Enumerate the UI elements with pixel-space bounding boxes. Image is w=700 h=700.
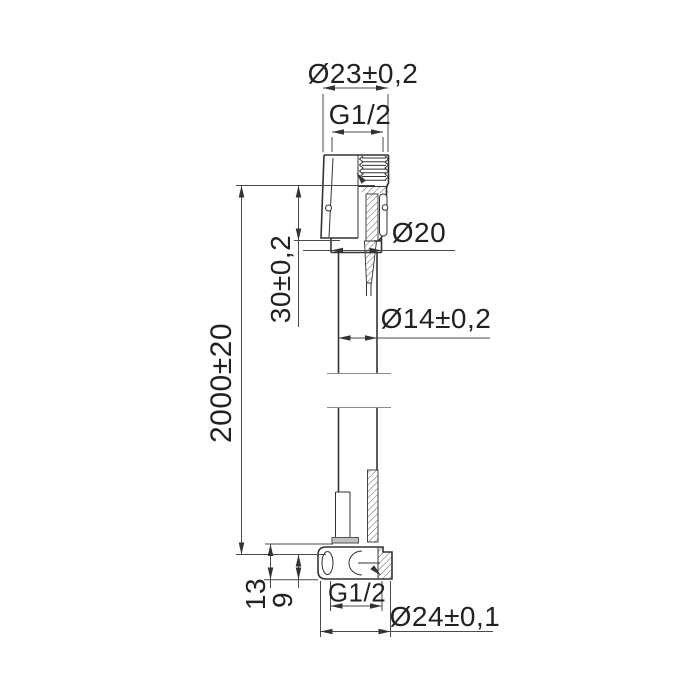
label-bottom-thread: G1/2 (328, 578, 386, 609)
dim-top-thread (332, 129, 383, 152)
label-top-thread: G1/2 (329, 99, 392, 131)
dim-hose-diameter (339, 335, 491, 341)
washer (332, 538, 359, 544)
label-bottom-outer-diameter: Ø24±0,1 (390, 601, 501, 633)
nipple-slot (380, 194, 388, 236)
bottom-fitting (318, 470, 392, 579)
label-hose-diameter: Ø14±0,2 (381, 303, 492, 335)
drawing-canvas: Ø23±0,2 G1/2 Ø20 Ø14±0,2 2000±20 30±0,2 … (0, 0, 700, 700)
label-top-outer-diameter: Ø23±0,2 (308, 58, 419, 90)
label-hose-length: 2000±20 (205, 323, 239, 443)
label-fitting-length: 30±0,2 (265, 235, 297, 323)
dim-fitting-length (294, 186, 340, 328)
label-cone-diameter: Ø20 (392, 217, 446, 249)
label-bottom-seat-height: 9 (267, 592, 299, 608)
nipple-dot (382, 205, 388, 211)
crimp-tail (365, 241, 377, 283)
nut-detail-dot (326, 205, 332, 211)
upper-fitting (321, 155, 389, 296)
hose-body (327, 253, 391, 493)
